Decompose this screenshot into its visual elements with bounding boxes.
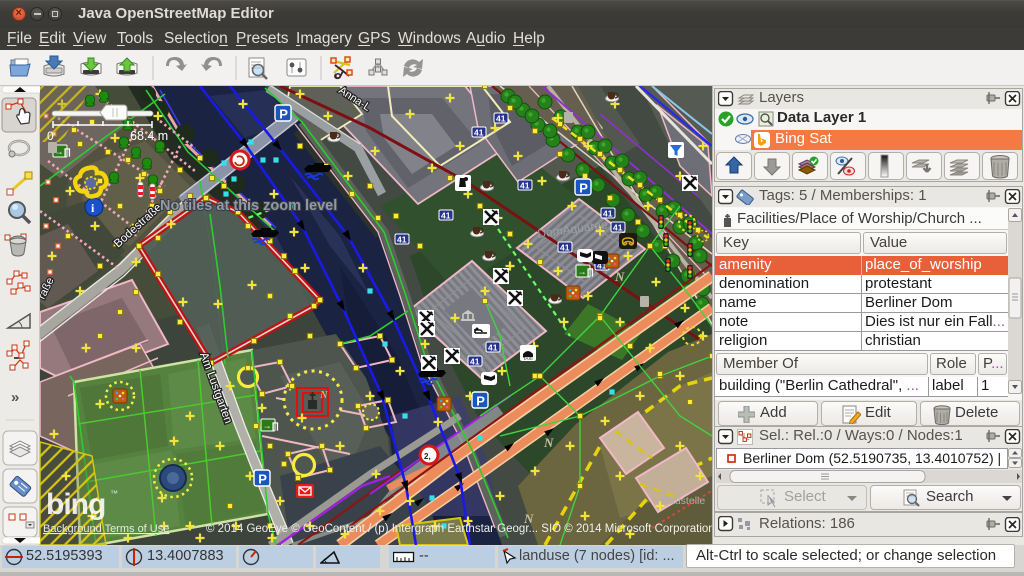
svg-text:68.4 m: 68.4 m xyxy=(130,129,168,143)
svg-text:© 2014 GeoEye © GeoContent / (: © 2014 GeoEye © GeoContent / (p) Intergr… xyxy=(206,523,712,535)
svg-text:»: » xyxy=(11,389,19,406)
svg-text:No tiles at this zoom level: No tiles at this zoom level xyxy=(160,198,337,214)
svg-text:N: N xyxy=(319,389,328,401)
svg-text:N: N xyxy=(543,435,554,450)
svg-text:0: 0 xyxy=(47,129,54,143)
svg-text:TAXI: TAXI xyxy=(523,356,533,361)
svg-text:Background Terms of Use: Background Terms of Use xyxy=(43,523,169,535)
svg-text:Baustelle: Baustelle xyxy=(662,495,705,507)
svg-text:N: N xyxy=(614,269,625,284)
svg-text:bing: bing xyxy=(46,488,105,521)
svg-text:2,: 2, xyxy=(424,452,431,461)
svg-text:™: ™ xyxy=(110,489,118,498)
